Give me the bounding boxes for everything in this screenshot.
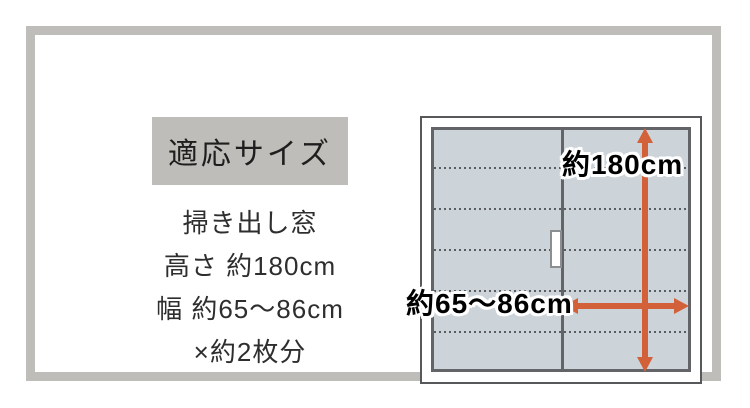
outer-border-frame: 適応サイズ 掃き出し窓 高さ 約180cm 幅 約65～86cm ×約2枚分 xyxy=(26,26,721,381)
arrow-down-head-icon xyxy=(637,357,653,372)
section-title-box: 適応サイズ xyxy=(152,117,348,185)
spec-text-block: 掃き出し窓 高さ 約180cm 幅 約65～86cm ×約2枚分 xyxy=(75,202,425,374)
product-size-infographic: 適応サイズ 掃き出し窓 高さ 約180cm 幅 約65～86cm ×約2枚分 xyxy=(0,0,750,408)
width-arrow-icon xyxy=(563,298,689,314)
section-title: 適応サイズ xyxy=(168,129,332,173)
window-diagram: 約180cm 約65～86cm xyxy=(420,116,702,384)
width-dimension-label: 約65～86cm xyxy=(406,282,573,322)
window-handle xyxy=(550,230,562,268)
spec-line-height: 高さ 約180cm xyxy=(75,245,425,288)
arrow-up-head-icon xyxy=(637,128,653,143)
width-arrow-shaft xyxy=(575,303,677,309)
arrow-right-head-icon xyxy=(674,298,689,314)
spec-line-window-type: 掃き出し窓 xyxy=(75,202,425,245)
height-dimension-label: 約180cm xyxy=(562,143,683,183)
spec-line-width: 幅 約65～86cm xyxy=(75,288,425,331)
spec-line-count: ×約2枚分 xyxy=(75,331,425,374)
